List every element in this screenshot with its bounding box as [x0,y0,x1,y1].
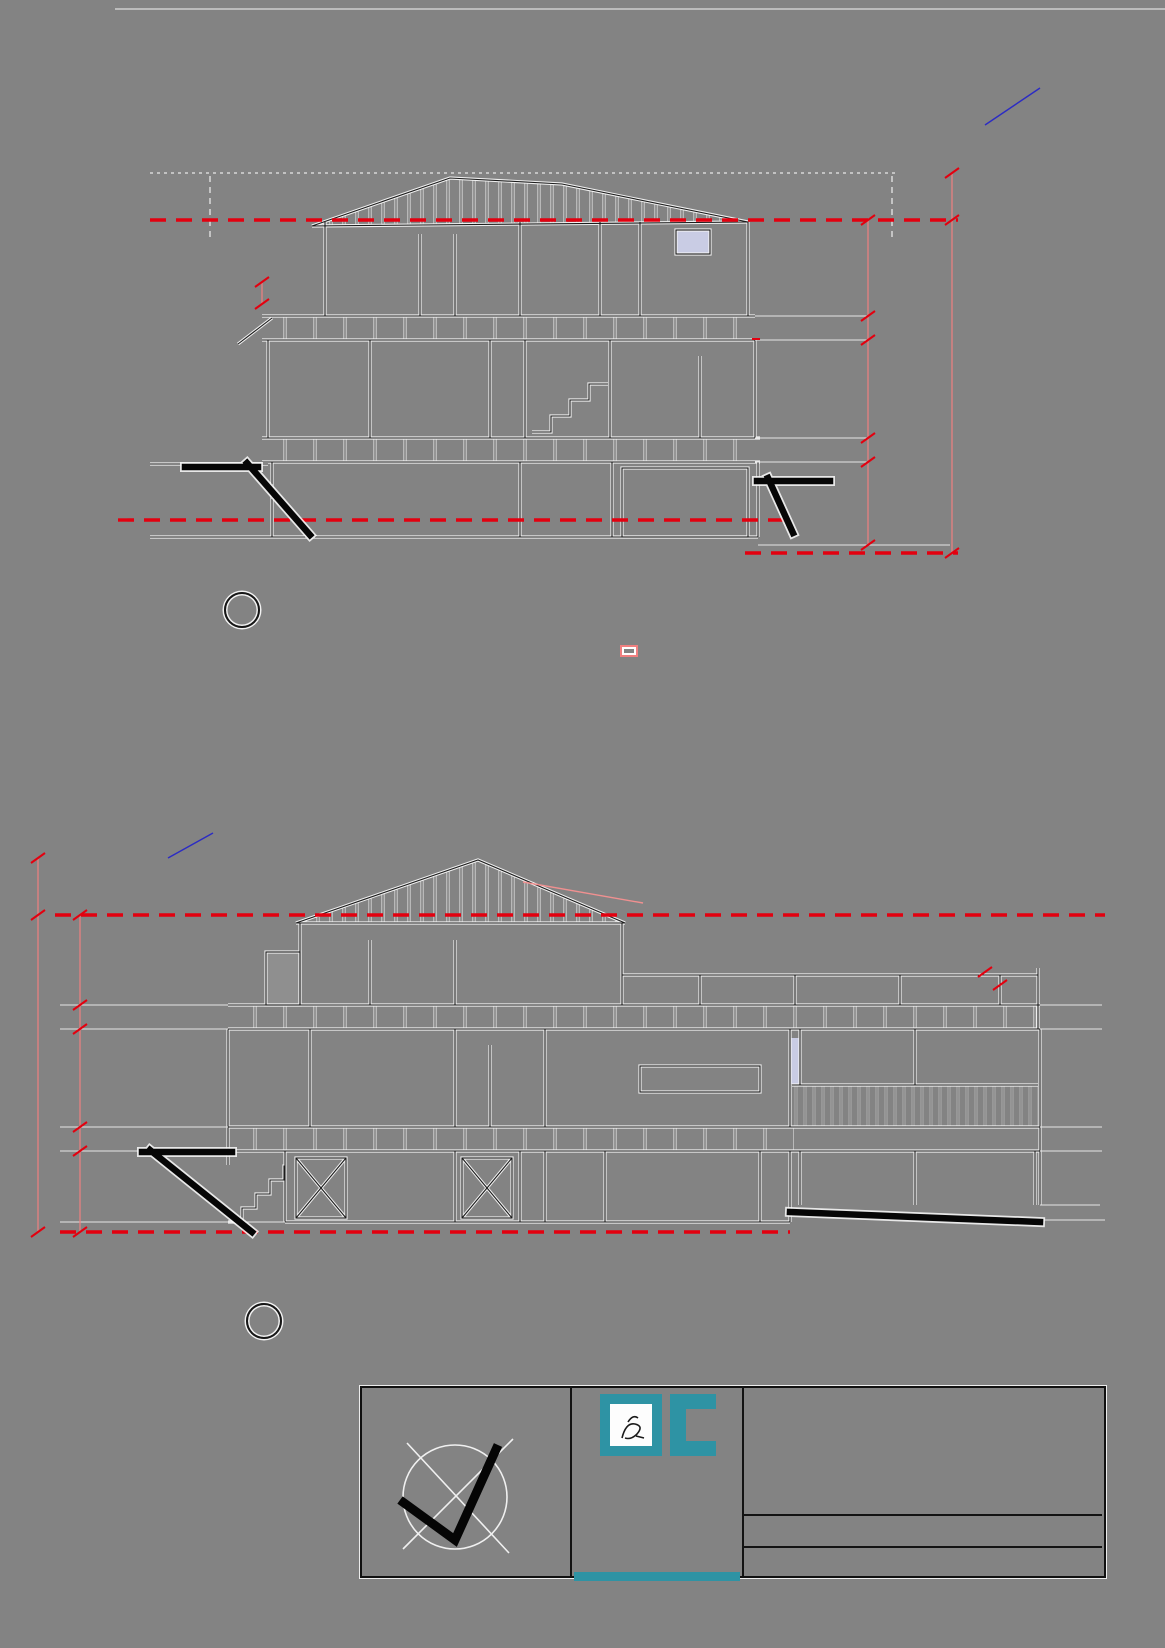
russell-scott-logo-icon [598,1392,728,1462]
title-block-divider-1 [570,1386,572,1576]
section2-number-bubble [246,1303,282,1339]
red-dashed-lines [55,220,1105,1232]
teal-footer-bar [574,1572,740,1581]
title-block-row-line-2 [744,1546,1102,1548]
window-fills [266,230,801,1084]
title-block-row-line-1 [744,1514,1102,1516]
north-arrow-icon [385,1415,545,1570]
drawing-sheet [0,0,1165,1648]
dim-450-box [752,338,760,340]
note-bal-box [620,645,638,657]
section1-number-bubble [224,592,260,628]
